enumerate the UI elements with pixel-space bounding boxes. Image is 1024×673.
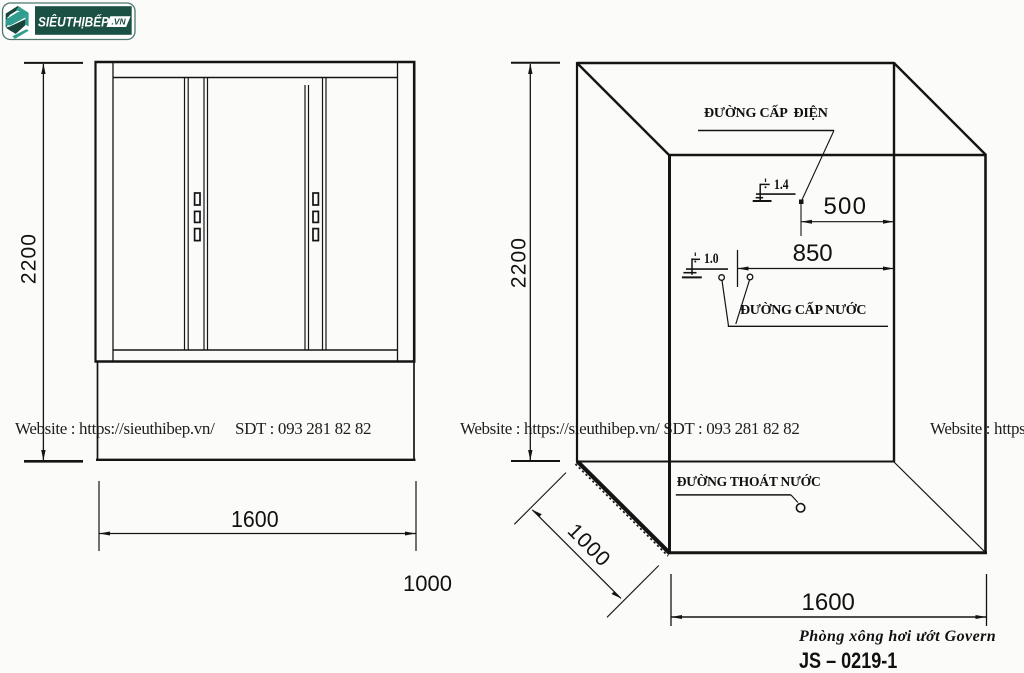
- svg-text:.VN: .VN: [112, 17, 127, 27]
- svg-text:SIÊUTHỊBẾP: SIÊUTHỊBẾP: [38, 13, 110, 30]
